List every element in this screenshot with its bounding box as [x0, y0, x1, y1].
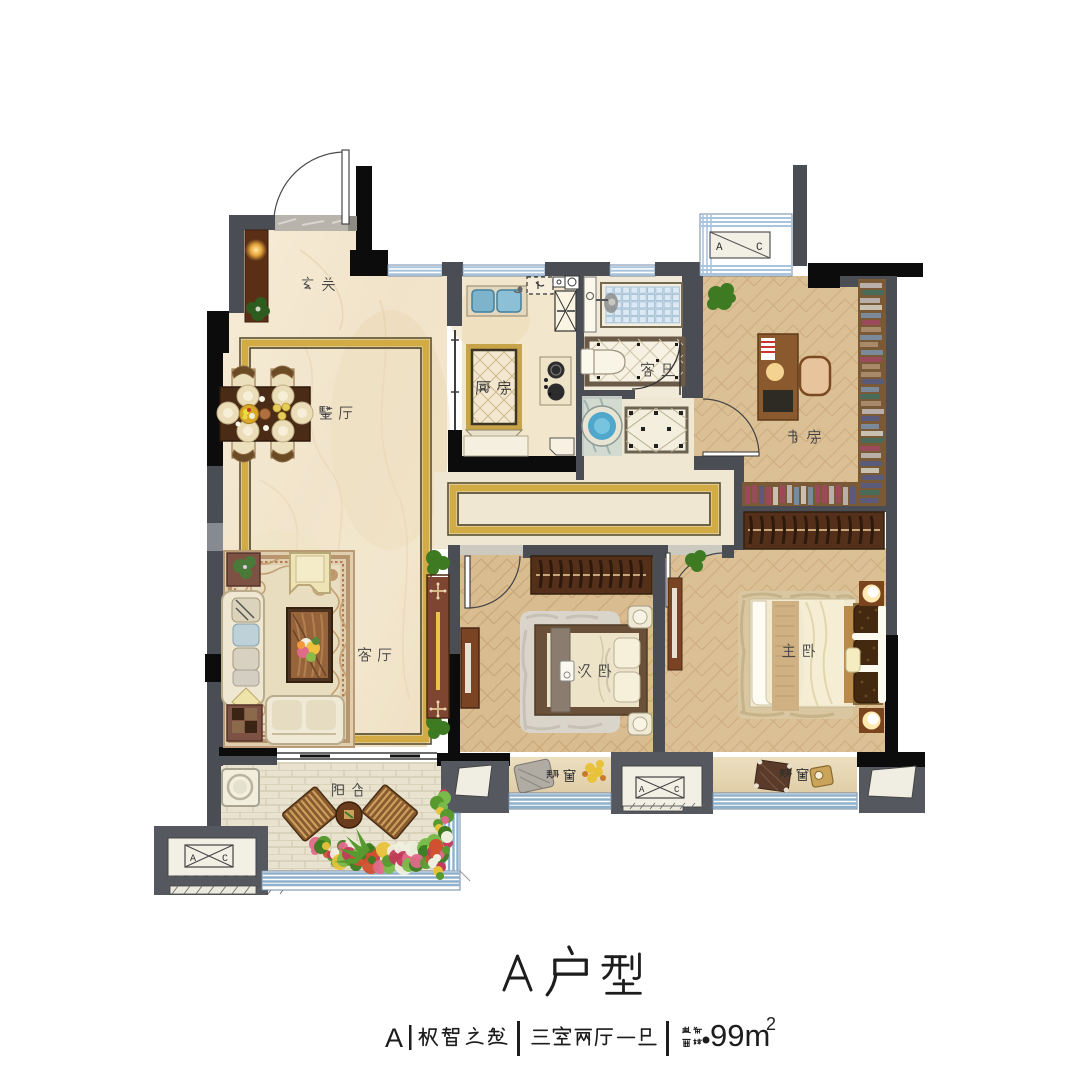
svg-text:C: C: [674, 785, 680, 795]
svg-text:2: 2: [766, 1014, 776, 1034]
svg-text:A: A: [190, 854, 196, 865]
svg-text:A: A: [385, 1023, 403, 1053]
svg-text:A: A: [716, 242, 723, 254]
svg-text:C: C: [222, 854, 228, 865]
svg-text:C: C: [756, 242, 763, 254]
svg-text:A: A: [639, 785, 645, 795]
svg-text:99m: 99m: [710, 1018, 770, 1053]
